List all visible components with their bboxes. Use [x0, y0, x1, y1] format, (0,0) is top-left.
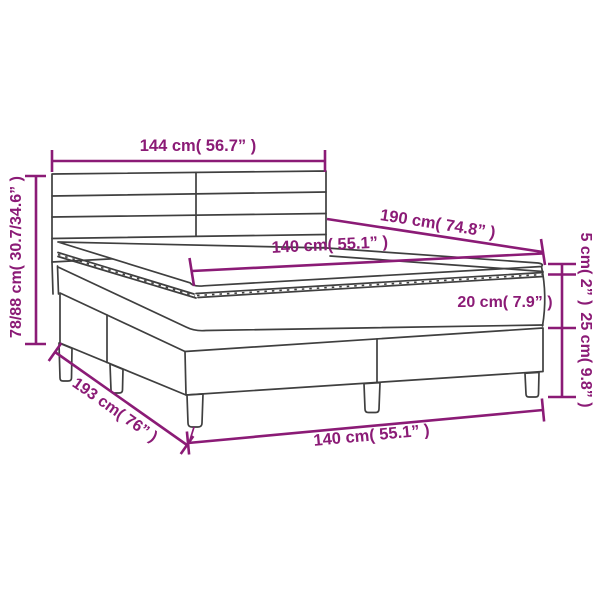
label-total-height: 78/88 cm( 30.7/34.6” ) — [8, 176, 25, 338]
dim-right-stack-lines — [548, 264, 576, 397]
label-headboard-width: 144 cm( 56.7” ) — [140, 137, 256, 155]
label-base-height: 25 cm( 9.8” ) — [577, 312, 594, 407]
leg-left-middle — [110, 364, 123, 393]
leg-foot-middle — [364, 383, 380, 413]
leg-foot-right — [525, 372, 539, 397]
leg-front-corner — [187, 394, 203, 427]
label-mattress-height: 20 cm( 7.9” ) — [457, 294, 552, 311]
dimension-diagram: 144 cm( 56.7” ) 78/88 cm( 30.7/34.6” ) 1… — [0, 0, 600, 600]
bed-diagram-svg: 144 cm( 56.7” ) 78/88 cm( 30.7/34.6” ) 1… — [0, 0, 600, 600]
base-corner-edge — [185, 352, 186, 396]
label-pillow-top-height: 5 cm( 2” ) — [577, 233, 594, 306]
dim-total-height-lines — [25, 176, 46, 344]
